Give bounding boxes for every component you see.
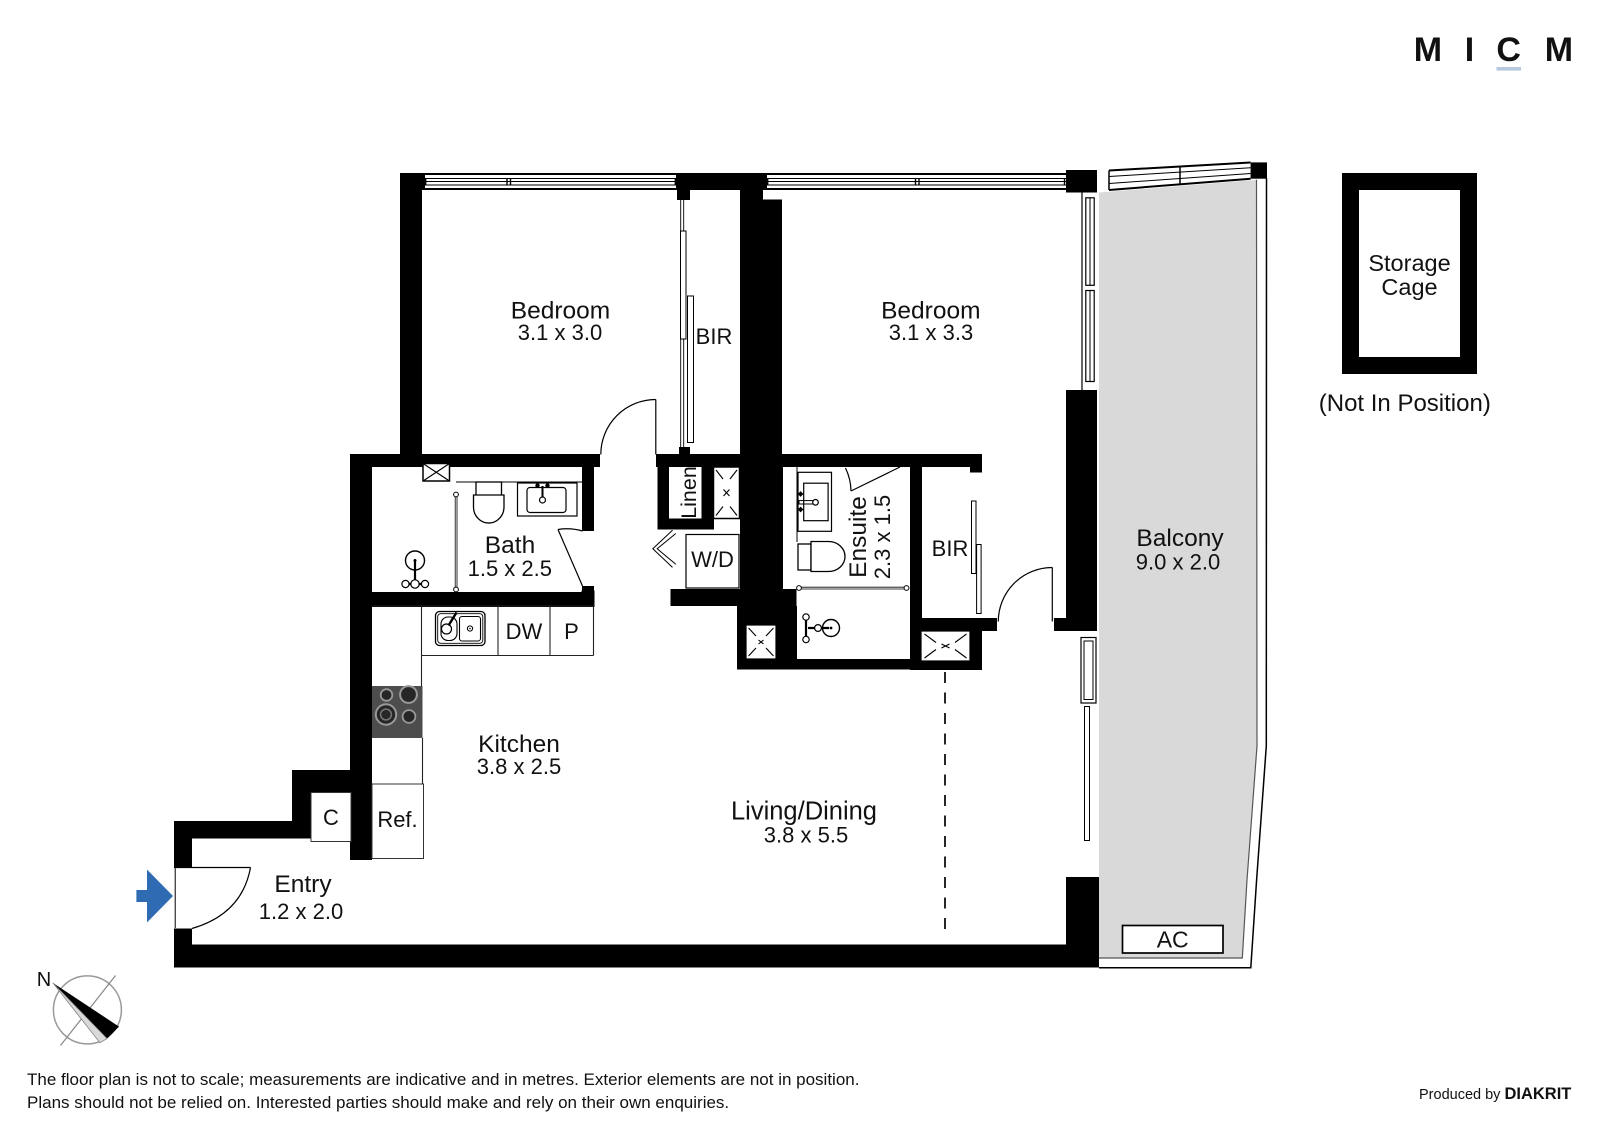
svg-text:M: M bbox=[1414, 31, 1442, 69]
svg-text:Plans should not be relied on.: Plans should not be relied on. Intereste… bbox=[27, 1093, 729, 1112]
svg-text:Cage: Cage bbox=[1381, 274, 1437, 300]
svg-text:3.1 x 3.3: 3.1 x 3.3 bbox=[889, 320, 973, 345]
svg-text:The floor plan is not to scale: The floor plan is not to scale; measurem… bbox=[27, 1070, 859, 1089]
svg-text:I: I bbox=[1465, 31, 1474, 69]
svg-text:Entry: Entry bbox=[274, 871, 332, 898]
svg-text:1.2 x 2.0: 1.2 x 2.0 bbox=[259, 899, 343, 924]
svg-text:3.8 x 5.5: 3.8 x 5.5 bbox=[764, 823, 848, 848]
svg-text:M: M bbox=[1545, 31, 1573, 69]
svg-text:C: C bbox=[1496, 31, 1521, 69]
svg-text:C: C bbox=[323, 805, 339, 830]
svg-text:W/D: W/D bbox=[691, 547, 734, 572]
svg-text:Ref.: Ref. bbox=[377, 807, 417, 832]
svg-text:Linen: Linen bbox=[677, 466, 701, 519]
svg-text:Bath: Bath bbox=[485, 532, 535, 559]
svg-text:P: P bbox=[564, 619, 579, 644]
svg-text:Balcony: Balcony bbox=[1136, 525, 1224, 552]
svg-text:9.0 x 2.0: 9.0 x 2.0 bbox=[1136, 550, 1220, 575]
svg-text:DW: DW bbox=[506, 619, 543, 644]
svg-text:3.1 x 3.0: 3.1 x 3.0 bbox=[518, 320, 602, 345]
svg-text:BIR: BIR bbox=[932, 536, 969, 561]
svg-text:2.3 x 1.5: 2.3 x 1.5 bbox=[870, 495, 895, 579]
svg-text:Living/Dining: Living/Dining bbox=[731, 798, 877, 826]
svg-text:Produced by DIAKRIT: Produced by DIAKRIT bbox=[1419, 1085, 1571, 1103]
svg-text:N: N bbox=[37, 969, 51, 991]
svg-text:BIR: BIR bbox=[696, 324, 733, 349]
svg-text:1.5 x 2.5: 1.5 x 2.5 bbox=[468, 556, 552, 581]
svg-text:3.8 x 2.5: 3.8 x 2.5 bbox=[477, 754, 561, 779]
svg-text:Storage: Storage bbox=[1368, 250, 1450, 276]
svg-text:Ensuite: Ensuite bbox=[845, 496, 872, 578]
svg-text:(Not In Position): (Not In Position) bbox=[1319, 390, 1491, 417]
svg-text:AC: AC bbox=[1157, 927, 1189, 953]
